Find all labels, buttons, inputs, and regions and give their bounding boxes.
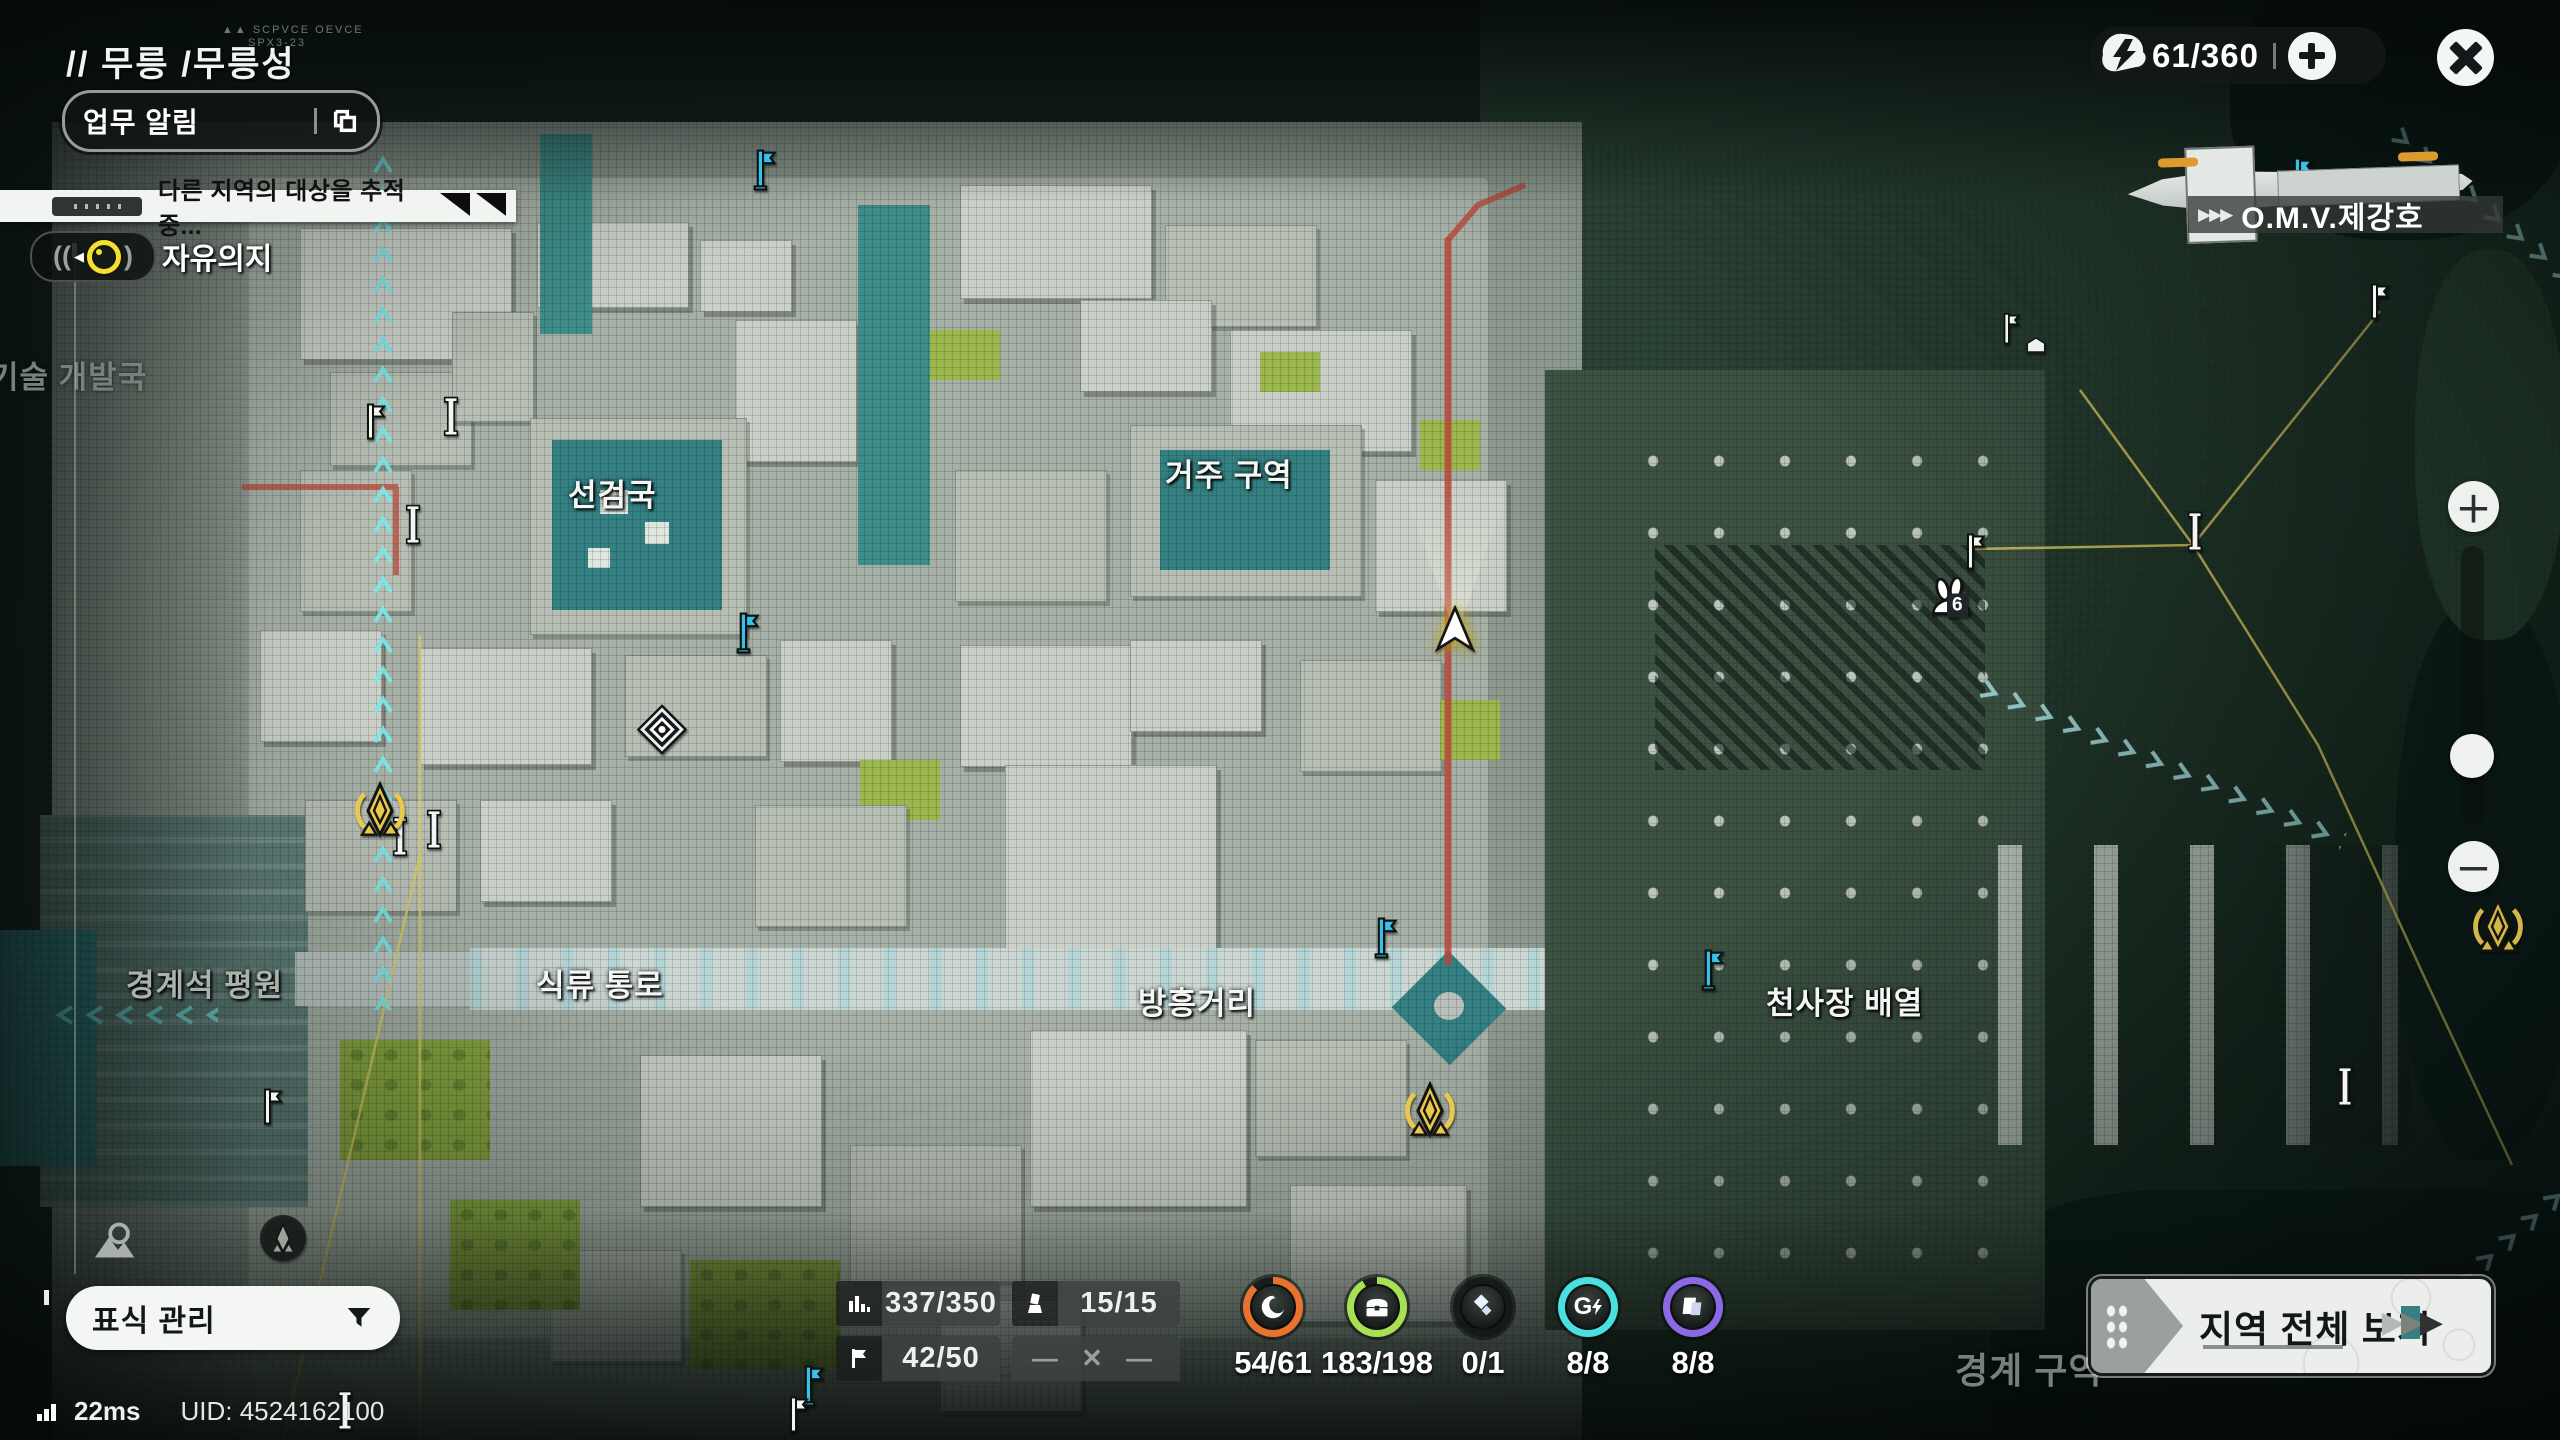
building <box>452 312 534 422</box>
building <box>780 640 892 762</box>
statue <box>1434 992 1464 1020</box>
tile <box>645 522 669 544</box>
marker-manage-button[interactable]: 표식 관리 <box>66 1286 400 1350</box>
left-triangle-icon: ◀ <box>74 249 84 265</box>
sentinel-emblem-marker[interactable] <box>352 780 408 845</box>
divider <box>314 108 317 134</box>
building <box>960 645 1132 767</box>
flag-icon <box>836 1347 882 1371</box>
map-label-boundary-zone: 경계 구역 <box>1955 1342 2102 1394</box>
garden <box>1440 700 1500 760</box>
building <box>1030 1030 1247 1207</box>
task-alert-button[interactable]: 업무 알림 <box>62 90 380 152</box>
waveplate-value: 61/360 <box>2152 37 2259 75</box>
micro-text-decor <box>2203 1345 2343 1349</box>
building <box>1005 765 1217 952</box>
ship-beacon-dash <box>2398 151 2438 161</box>
flag-marker[interactable] <box>357 403 387 448</box>
device-tag: ▲▲ SCPVCE OEVCE SPX3-23 <box>222 24 364 50</box>
pole-marker[interactable] <box>2337 1066 2354 1115</box>
bolt-icon <box>1592 1299 1602 1315</box>
paren-icon: (( <box>53 243 71 270</box>
building <box>1130 640 1262 732</box>
plus-icon: ＋ <box>2455 481 2491 533</box>
clipboard-icon <box>331 107 359 135</box>
building <box>260 630 382 742</box>
pole-marker[interactable] <box>405 504 422 553</box>
flags-value: 42/50 <box>882 1336 1000 1381</box>
waveplate-icon <box>2098 31 2148 79</box>
target-ring-icon <box>87 240 121 274</box>
building <box>640 1055 822 1207</box>
card-icon <box>1679 1293 1707 1321</box>
paren-icon: ) <box>124 243 133 270</box>
close-map-button[interactable] <box>2437 29 2494 86</box>
shard-progress-ring[interactable] <box>1453 1277 1513 1337</box>
locked-value: — ✕ — <box>1012 1336 1180 1381</box>
rabbit-count-badge: 6 <box>1947 594 1968 618</box>
building <box>1255 1040 1407 1157</box>
teleport-flag-marker[interactable] <box>1694 949 1726 996</box>
teleport-flag-marker[interactable] <box>746 149 778 196</box>
pole-marker[interactable] <box>2187 511 2204 560</box>
record-progress-ring[interactable] <box>1663 1277 1723 1337</box>
building <box>960 185 1152 299</box>
pole-marker[interactable] <box>426 809 443 858</box>
challenge-progress-ring[interactable]: G <box>1558 1277 1618 1337</box>
observation-value: 15/15 <box>1058 1281 1180 1326</box>
canal <box>540 134 592 334</box>
notification-text: 다른 지역의 대상을 추적 중... <box>158 171 440 241</box>
flag-marker[interactable] <box>1957 533 1987 578</box>
map-label-food-passage: 식류 통로 <box>536 960 664 1005</box>
teleport-flag-marker[interactable] <box>729 612 761 659</box>
region-overview-button[interactable]: 지역 전체 보기 ▶▶▶ <box>2088 1276 2494 1376</box>
map-label-cheonsajang-array: 천사장 배열 <box>1766 978 1923 1023</box>
game-map-screen: 기술 개발국 선검국 거주 구역 경계석 평원 식류 통로 방흥거리 천사장 배… <box>0 0 2560 1440</box>
building <box>700 240 792 312</box>
map-label-bangheung-street: 방흥거리 <box>1138 978 1256 1023</box>
scope-icon <box>1012 1291 1058 1317</box>
building <box>955 470 1107 602</box>
building <box>420 648 592 765</box>
bars-icon <box>836 1292 882 1316</box>
exploration-value: 337/350 <box>882 1281 1000 1326</box>
dots-decor <box>2105 1303 2129 1349</box>
tile <box>588 548 610 568</box>
park <box>450 1200 580 1310</box>
park <box>340 1040 490 1160</box>
sentinel-emblem-marker[interactable] <box>2470 896 2526 961</box>
boss-icon <box>1258 1292 1288 1322</box>
zoom-slider-track[interactable] <box>2461 546 2484 826</box>
add-waveplate-button[interactable] <box>2288 32 2336 80</box>
sentinel-emblem-marker[interactable] <box>1402 1080 1458 1145</box>
grey-emblem-marker[interactable] <box>260 1215 306 1261</box>
flag-marker[interactable] <box>254 1088 284 1133</box>
observation-stat: 15/15 <box>1012 1281 1180 1326</box>
ship-beacon-dash <box>2158 157 2198 167</box>
rabbit-marker[interactable]: 6 <box>1929 578 1975 623</box>
minus-icon: － <box>2455 841 2491 893</box>
g-energy-icon: G <box>1574 1293 1593 1321</box>
zoom-slider-knob[interactable] <box>2450 734 2494 778</box>
signal-icon <box>34 1400 60 1424</box>
zoom-in-button[interactable]: ＋ <box>2448 481 2499 532</box>
notification-badge <box>52 197 142 216</box>
marker-manage-label: 표식 관리 <box>92 1296 344 1340</box>
pole-marker[interactable] <box>443 396 460 445</box>
uid-value: UID: 4524162100 <box>181 1396 385 1427</box>
shard-icon <box>1469 1293 1497 1321</box>
filter-icon <box>344 1303 374 1333</box>
flag-decor-icon <box>440 193 470 219</box>
garden <box>1420 420 1480 470</box>
flag-marker[interactable] <box>780 1396 810 1440</box>
triple-arrow-icon: ▶▶▶ <box>2382 1305 2439 1340</box>
flag-marker[interactable] <box>2361 283 2391 328</box>
park <box>690 1260 840 1370</box>
chest-icon <box>1362 1293 1392 1321</box>
pool <box>0 930 96 1166</box>
garden <box>1260 352 1320 392</box>
courtyard-pool <box>552 440 722 610</box>
building <box>1080 300 1212 392</box>
flag-decor-icon <box>476 193 506 219</box>
tracked-objective-chip[interactable]: (( ◀ ) <box>30 231 156 282</box>
triangle-logo-icon: ▲▲ <box>222 24 253 36</box>
flag-marker[interactable] <box>1995 312 2021 353</box>
zoom-out-button[interactable]: － <box>2448 841 2499 892</box>
waveplate-counter: 61/360 <box>2090 27 2386 84</box>
fade <box>2250 845 2410 1145</box>
map-label-seongeomguk: 선검국 <box>568 470 657 515</box>
building <box>300 470 412 612</box>
boss-progress-ring[interactable] <box>1243 1277 1303 1337</box>
building <box>850 1145 1022 1282</box>
building <box>1300 660 1442 772</box>
triple-arrow-icon: ▶▶▶ <box>2198 205 2231 225</box>
garden <box>930 330 1000 380</box>
diamond-seal-marker[interactable] <box>636 704 688 761</box>
island <box>2415 250 2560 640</box>
landmark-visibility-icon[interactable] <box>92 1222 136 1265</box>
player-arrow-marker <box>1433 606 1477 659</box>
map-label-residential: 거주 구역 <box>1165 450 1293 495</box>
building <box>480 800 612 902</box>
teleport-flag-marker[interactable] <box>1367 917 1399 964</box>
locked-stat: — ✕ — <box>1012 1336 1180 1381</box>
landmark-icon <box>2025 337 2047 360</box>
building <box>755 805 907 927</box>
building <box>735 320 857 462</box>
guide-tick <box>44 1290 49 1305</box>
canal <box>858 205 930 565</box>
tracked-objective-label: 자유의지 <box>162 234 272 278</box>
left-guide-line <box>74 248 76 1274</box>
flags-stat: 42/50 <box>836 1336 1000 1381</box>
street <box>295 952 470 1006</box>
exploration-stat: 337/350 <box>836 1281 1000 1326</box>
task-alert-label: 업무 알림 <box>83 101 300 141</box>
ping-value: 22ms <box>74 1396 141 1427</box>
chest-progress-ring[interactable] <box>1347 1277 1407 1337</box>
divider <box>2273 43 2276 69</box>
record-ring-value: 8/8 <box>1628 1345 1758 1381</box>
ship-label[interactable]: ▶▶▶ O.M.V.제강호 <box>2188 196 2503 233</box>
connection-info: 22ms UID: 4524162100 <box>34 1396 384 1427</box>
map-label-boundary-plain: 경계석 평원 <box>126 960 283 1005</box>
tracking-notification-bar[interactable]: 다른 지역의 대상을 추적 중... <box>0 190 516 222</box>
